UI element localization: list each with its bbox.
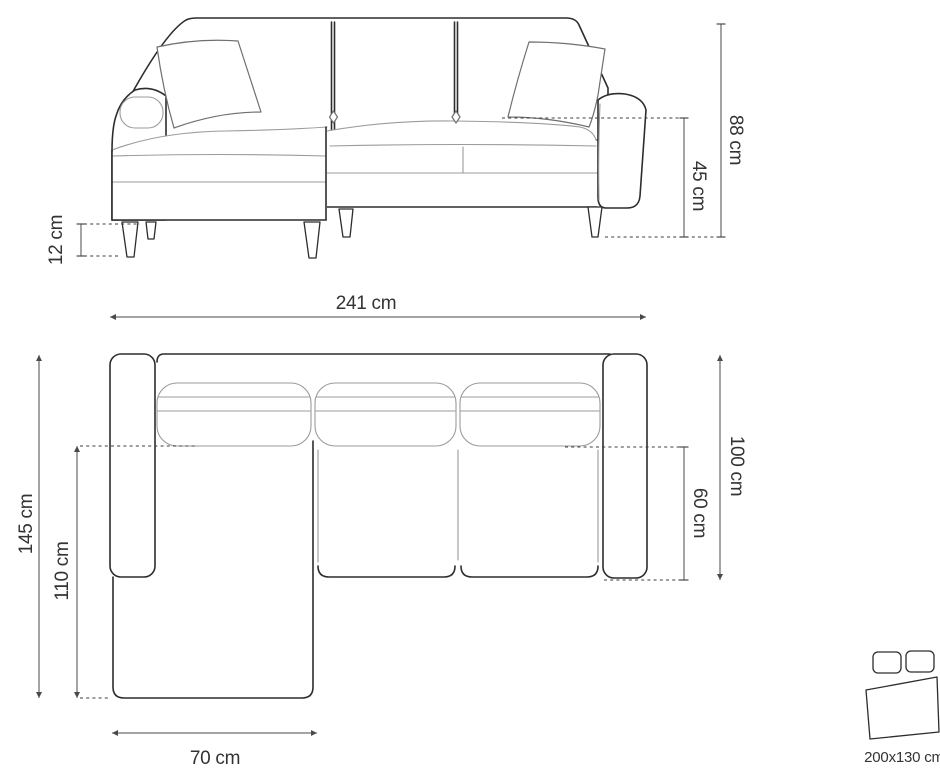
dim-label-total-depth: 145 cm [16,494,37,555]
leg-chaise-front-right [304,222,320,258]
dim-total-width: 241 cm [110,293,646,320]
dim-label-total-height: 88 cm [725,115,746,165]
plan-seat-middle-front [318,566,455,577]
leg-main-right [588,207,602,237]
dim-label-chaise-length: 110 cm [52,541,73,600]
dim-total-depth: 145 cm [16,355,42,698]
plan-back-cushion-3 [460,383,600,446]
plan-seat-right-front [461,566,598,577]
dim-body-depth: 100 cm [717,355,747,580]
leg-main-left [339,209,353,237]
dim-label-chaise-width: 70 cm [190,748,240,769]
main-seat-fill [327,121,597,207]
bed-size-label: 200x130 cm [864,749,940,766]
plan-back-rail [157,354,610,362]
right-armrest [598,94,646,208]
plan-back-cushion-1 [157,383,311,446]
sofa-bed-icon: 200x130 cm [864,651,940,766]
diagram-svg: 12 cm 45 cm 88 cm 241 cm [0,0,940,780]
front-view-drawing [112,18,646,258]
bed-pillow-right [906,651,934,672]
dim-label-seat-depth: 60 cm [689,488,710,538]
dim-label-leg-height: 12 cm [46,215,67,265]
plan-back-cushion-2 [315,383,456,446]
dim-label-seat-height: 45 cm [688,161,709,211]
bed-mattress [866,677,939,739]
dim-label-total-width: 241 cm [336,293,397,314]
top-view-drawing [110,354,647,698]
sofa-dimension-diagram: 12 cm 45 cm 88 cm 241 cm [0,0,940,780]
dim-label-body-depth: 100 cm [726,436,747,497]
leg-chaise-front-left [122,222,138,257]
plan-left-armrest [110,354,155,577]
dim-chaise-width: 70 cm [112,730,317,769]
plan-right-armrest [603,354,647,578]
bed-pillow-left [873,652,901,673]
leg-chaise-back-left [146,222,156,239]
